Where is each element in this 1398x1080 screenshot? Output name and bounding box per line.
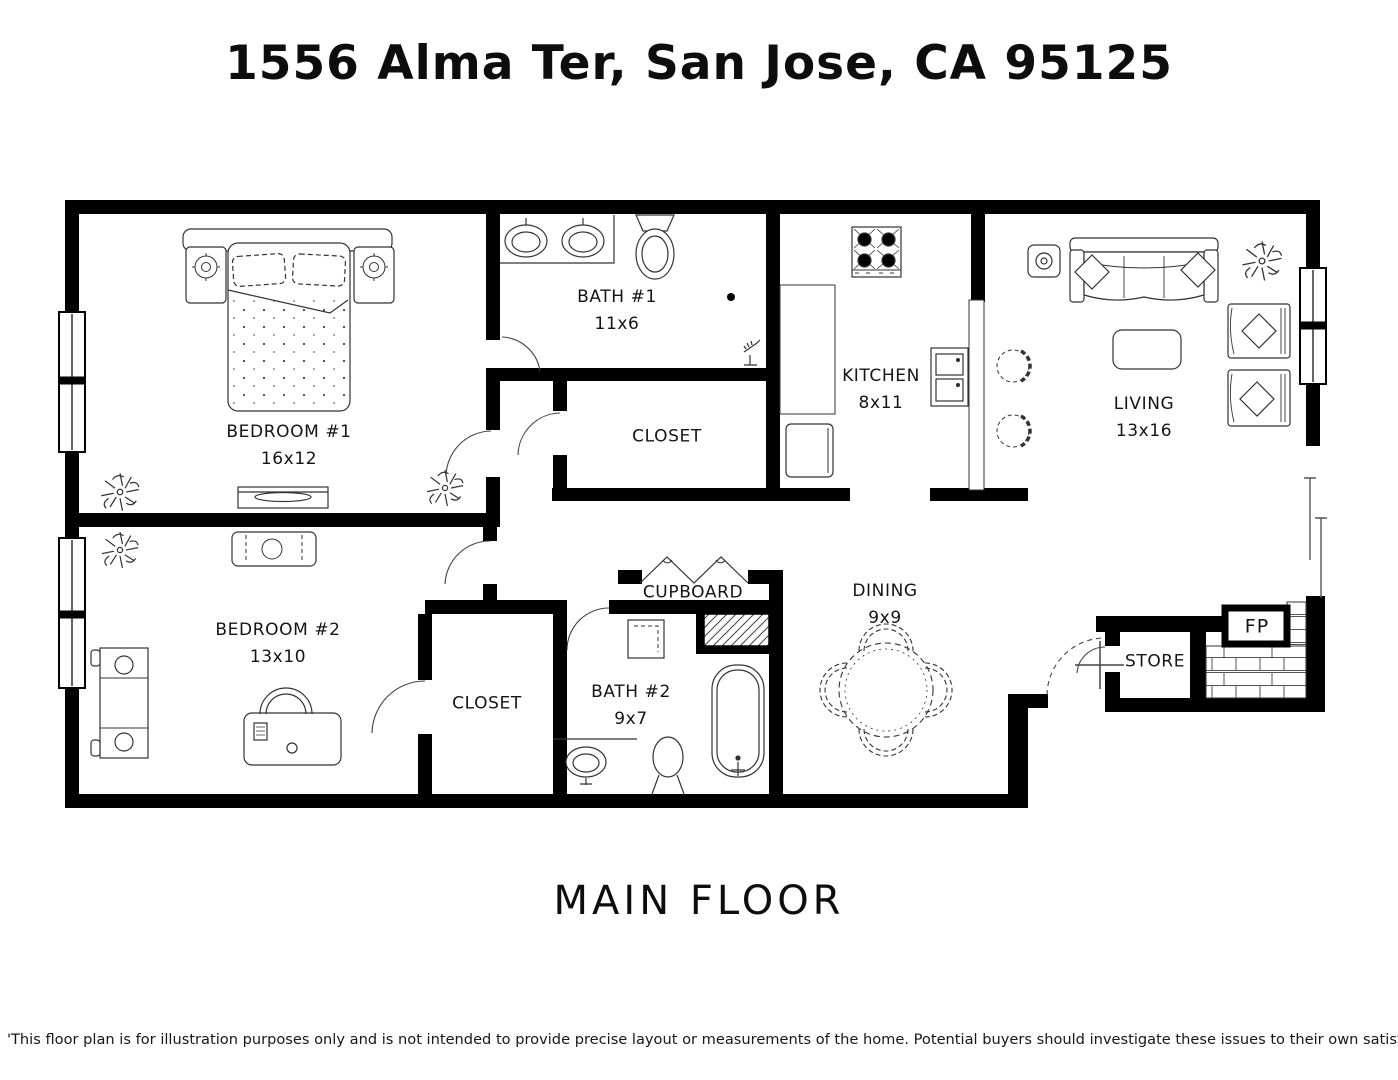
room-dims: 8x11 (842, 390, 920, 417)
bar-stool-icon (997, 350, 1030, 382)
wall-cabinet (628, 620, 664, 658)
toilet-icon (636, 215, 674, 279)
room-label-kitchen: KITCHEN 8x11 (842, 363, 920, 417)
coffee-table (1113, 330, 1181, 369)
store-door-arc (1077, 647, 1105, 673)
armchair (1228, 304, 1290, 358)
bench (232, 532, 316, 566)
floor-name: MAIN FLOOR (0, 878, 1398, 924)
entry-door-arc (1047, 638, 1104, 695)
patio-edge (1304, 478, 1327, 598)
room-label-bath2: BATH #2 9x7 (591, 679, 671, 733)
room-name: CUPBOARD (643, 580, 743, 607)
window-living (1300, 268, 1326, 384)
room-dims: 9x7 (591, 706, 671, 733)
stove-icon (852, 227, 901, 277)
sink-icon (562, 218, 604, 257)
room-name: DINING (852, 578, 917, 605)
breakfast-bar (969, 300, 984, 490)
room-name: STORE (1125, 649, 1185, 676)
sink-icon (566, 747, 606, 785)
room-dims: 9x9 (852, 605, 917, 632)
window-bedroom2 (59, 538, 85, 688)
bath1-door-arc (502, 337, 540, 371)
sink-icon (505, 218, 547, 257)
side-table (91, 648, 148, 758)
room-name: LIVING (1114, 391, 1175, 418)
disclaimer-text: 'This floor plan is for illustration pur… (7, 1031, 1397, 1048)
closet1-door-arc (518, 413, 560, 455)
plant-icon (1243, 242, 1282, 281)
bedroom2-door-arc (445, 541, 490, 584)
shower-head-icon (744, 340, 760, 365)
floor-plan-page: 1556 Alma Ter, San Jose, CA 95125 (0, 0, 1398, 1080)
armchair (1228, 370, 1290, 426)
room-dims: 16x12 (226, 446, 351, 473)
room-name: KITCHEN (842, 363, 920, 390)
bar-stool-icon (997, 415, 1030, 447)
room-label-bedroom1: BEDROOM #1 16x12 (226, 419, 351, 473)
dining-furniture (820, 624, 952, 756)
dining-chair (820, 663, 847, 717)
room-dims: 13x16 (1114, 418, 1175, 445)
room-label-closet2: CLOSET (452, 691, 522, 718)
dresser (238, 487, 328, 508)
room-name: CLOSET (452, 691, 522, 718)
room-label-fireplace: FP (1245, 614, 1269, 641)
room-label-bath1: BATH #1 11x6 (577, 284, 657, 338)
stereo-icon (1028, 245, 1060, 277)
kitchen-sink-icon (931, 348, 968, 406)
kitchen-counter (780, 285, 835, 414)
closet2-door-arc (372, 681, 425, 733)
room-dims: 11x6 (577, 311, 657, 338)
pillow-left (232, 253, 286, 287)
kitchen-fixtures (780, 227, 1030, 490)
plant-icon (427, 470, 463, 506)
bathtub-icon (712, 665, 764, 777)
room-label-living: LIVING 13x16 (1114, 391, 1175, 445)
plant-icon (101, 473, 139, 511)
window-bedroom1 (59, 312, 85, 452)
bath2-door-arc (567, 608, 609, 650)
sofa (1070, 238, 1218, 302)
desk (244, 688, 341, 765)
room-label-store: STORE (1125, 649, 1185, 676)
room-name: CLOSET (632, 424, 702, 451)
shower-niche (704, 614, 769, 646)
toilet-icon (652, 737, 684, 794)
pillow-right (292, 254, 345, 287)
room-label-closet1: CLOSET (632, 424, 702, 451)
room-label-bedroom2: BEDROOM #2 13x10 (215, 617, 340, 671)
double-bed (228, 243, 350, 411)
desk-chair (260, 688, 312, 714)
room-label-cupboard: CUPBOARD (643, 580, 743, 607)
room-label-dining: DINING 9x9 (852, 578, 917, 632)
bedroom1-door-arc (446, 431, 491, 476)
refrigerator-icon (786, 424, 833, 477)
room-dims: 13x10 (215, 644, 340, 671)
room-name: BATH #1 (577, 284, 657, 311)
plant-icon (102, 532, 138, 568)
room-name: BATH #2 (591, 679, 671, 706)
dining-table (839, 643, 933, 737)
drain-dot (727, 293, 735, 301)
room-name: BEDROOM #1 (226, 419, 351, 446)
room-name: BEDROOM #2 (215, 617, 340, 644)
room-name: FP (1245, 614, 1269, 641)
